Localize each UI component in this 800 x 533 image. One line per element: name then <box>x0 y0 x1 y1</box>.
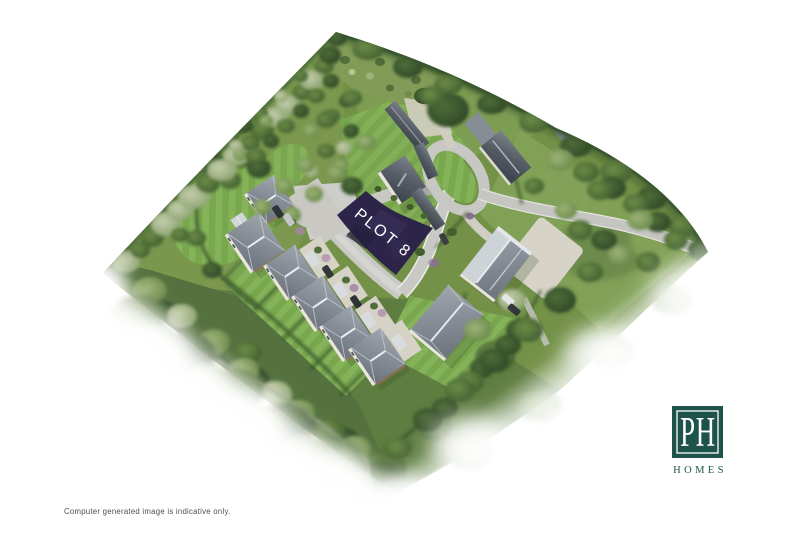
svg-text:HOMES: HOMES <box>673 465 727 476</box>
svg-text:PH: PH <box>680 409 716 455</box>
svg-text:Computer generated image is in: Computer generated image is indicative o… <box>64 507 230 516</box>
